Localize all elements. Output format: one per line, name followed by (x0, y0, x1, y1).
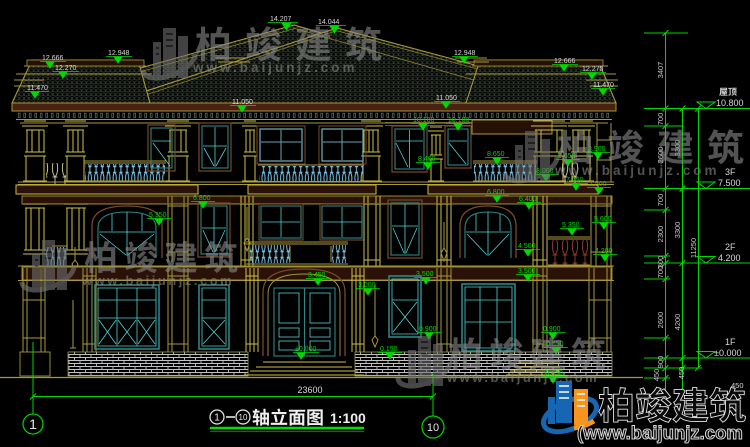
svg-text:11.470: 11.470 (27, 85, 48, 92)
svg-text:0.150: 0.150 (380, 346, 398, 353)
svg-text:14.044: 14.044 (318, 19, 340, 26)
svg-text:700: 700 (656, 194, 665, 207)
svg-text:7.500: 7.500 (589, 181, 607, 188)
svg-text:5.350: 5.350 (562, 222, 580, 229)
svg-text:12.666: 12.666 (42, 55, 64, 62)
svg-text:3.500: 3.500 (518, 268, 536, 275)
svg-text:10.100: 10.100 (413, 117, 435, 124)
svg-text:6.800: 6.800 (193, 195, 211, 202)
svg-text:12.270: 12.270 (55, 65, 77, 72)
svg-text:5.350: 5.350 (149, 212, 167, 219)
svg-text:4.200: 4.200 (595, 248, 613, 255)
svg-text:6.400: 6.400 (519, 196, 537, 203)
svg-text:11.470: 11.470 (593, 82, 614, 89)
svg-text:11.050: 11.050 (436, 95, 457, 102)
svg-text:450: 450 (677, 367, 686, 380)
svg-text:1: 1 (29, 416, 37, 432)
svg-text:10: 10 (427, 422, 439, 434)
svg-text:www.baijunjz.com: www.baijunjz.com (192, 60, 358, 75)
svg-text:2600: 2600 (656, 312, 665, 329)
svg-text:www.baijunjz.com: www.baijunjz.com (554, 163, 720, 178)
svg-text:(www.baijunjz.com: (www.baijunjz.com (577, 422, 743, 443)
svg-text:3.000: 3.000 (358, 282, 376, 289)
svg-text:www.baijunjz.com: www.baijunjz.com (446, 370, 599, 385)
svg-text:11250: 11250 (689, 238, 698, 258)
svg-text:3F: 3F (725, 167, 736, 177)
svg-text:3300: 3300 (673, 222, 682, 239)
svg-text:700: 700 (656, 113, 665, 126)
svg-text:2300: 2300 (656, 226, 665, 243)
svg-text:www.baijunjz.com: www.baijunjz.com (81, 273, 234, 288)
svg-text:1F: 1F (725, 337, 736, 347)
svg-text:1: 1 (214, 413, 220, 424)
svg-text:23600: 23600 (297, 385, 322, 395)
svg-text:12.270: 12.270 (582, 66, 604, 73)
svg-text:7.650: 7.650 (566, 177, 584, 184)
svg-text:10.800: 10.800 (716, 98, 744, 108)
svg-text:10: 10 (239, 413, 248, 422)
svg-text:3407: 3407 (656, 62, 665, 79)
svg-text:700: 700 (656, 266, 665, 279)
svg-text:3.450: 3.450 (308, 272, 326, 279)
svg-text:4200: 4200 (673, 314, 682, 331)
svg-text:12.666: 12.666 (554, 58, 576, 65)
svg-text:4.500: 4.500 (518, 243, 536, 250)
svg-text:±0.000: ±0.000 (714, 348, 741, 358)
svg-text:11.050: 11.050 (232, 99, 253, 106)
svg-text:12.948: 12.948 (454, 50, 476, 57)
svg-text:14.207: 14.207 (270, 16, 292, 23)
svg-text:900: 900 (656, 356, 665, 369)
svg-text:7.500: 7.500 (718, 178, 741, 188)
svg-text:8.400: 8.400 (418, 156, 436, 163)
svg-text:±0.000: ±0.000 (295, 346, 316, 353)
svg-text:0.900: 0.900 (419, 326, 437, 333)
svg-text:6.800: 6.800 (487, 189, 505, 196)
svg-text:4.200: 4.200 (718, 253, 741, 263)
svg-text:10.100: 10.100 (448, 117, 470, 124)
svg-text:2F: 2F (725, 242, 736, 252)
svg-text:8.650: 8.650 (487, 151, 505, 158)
svg-text:12.948: 12.948 (108, 50, 130, 57)
svg-text:450: 450 (652, 369, 661, 382)
svg-text:0.900: 0.900 (543, 326, 561, 333)
svg-text:1:100: 1:100 (330, 410, 366, 426)
svg-text:5.600: 5.600 (594, 216, 612, 223)
svg-text:3.500: 3.500 (416, 271, 434, 278)
